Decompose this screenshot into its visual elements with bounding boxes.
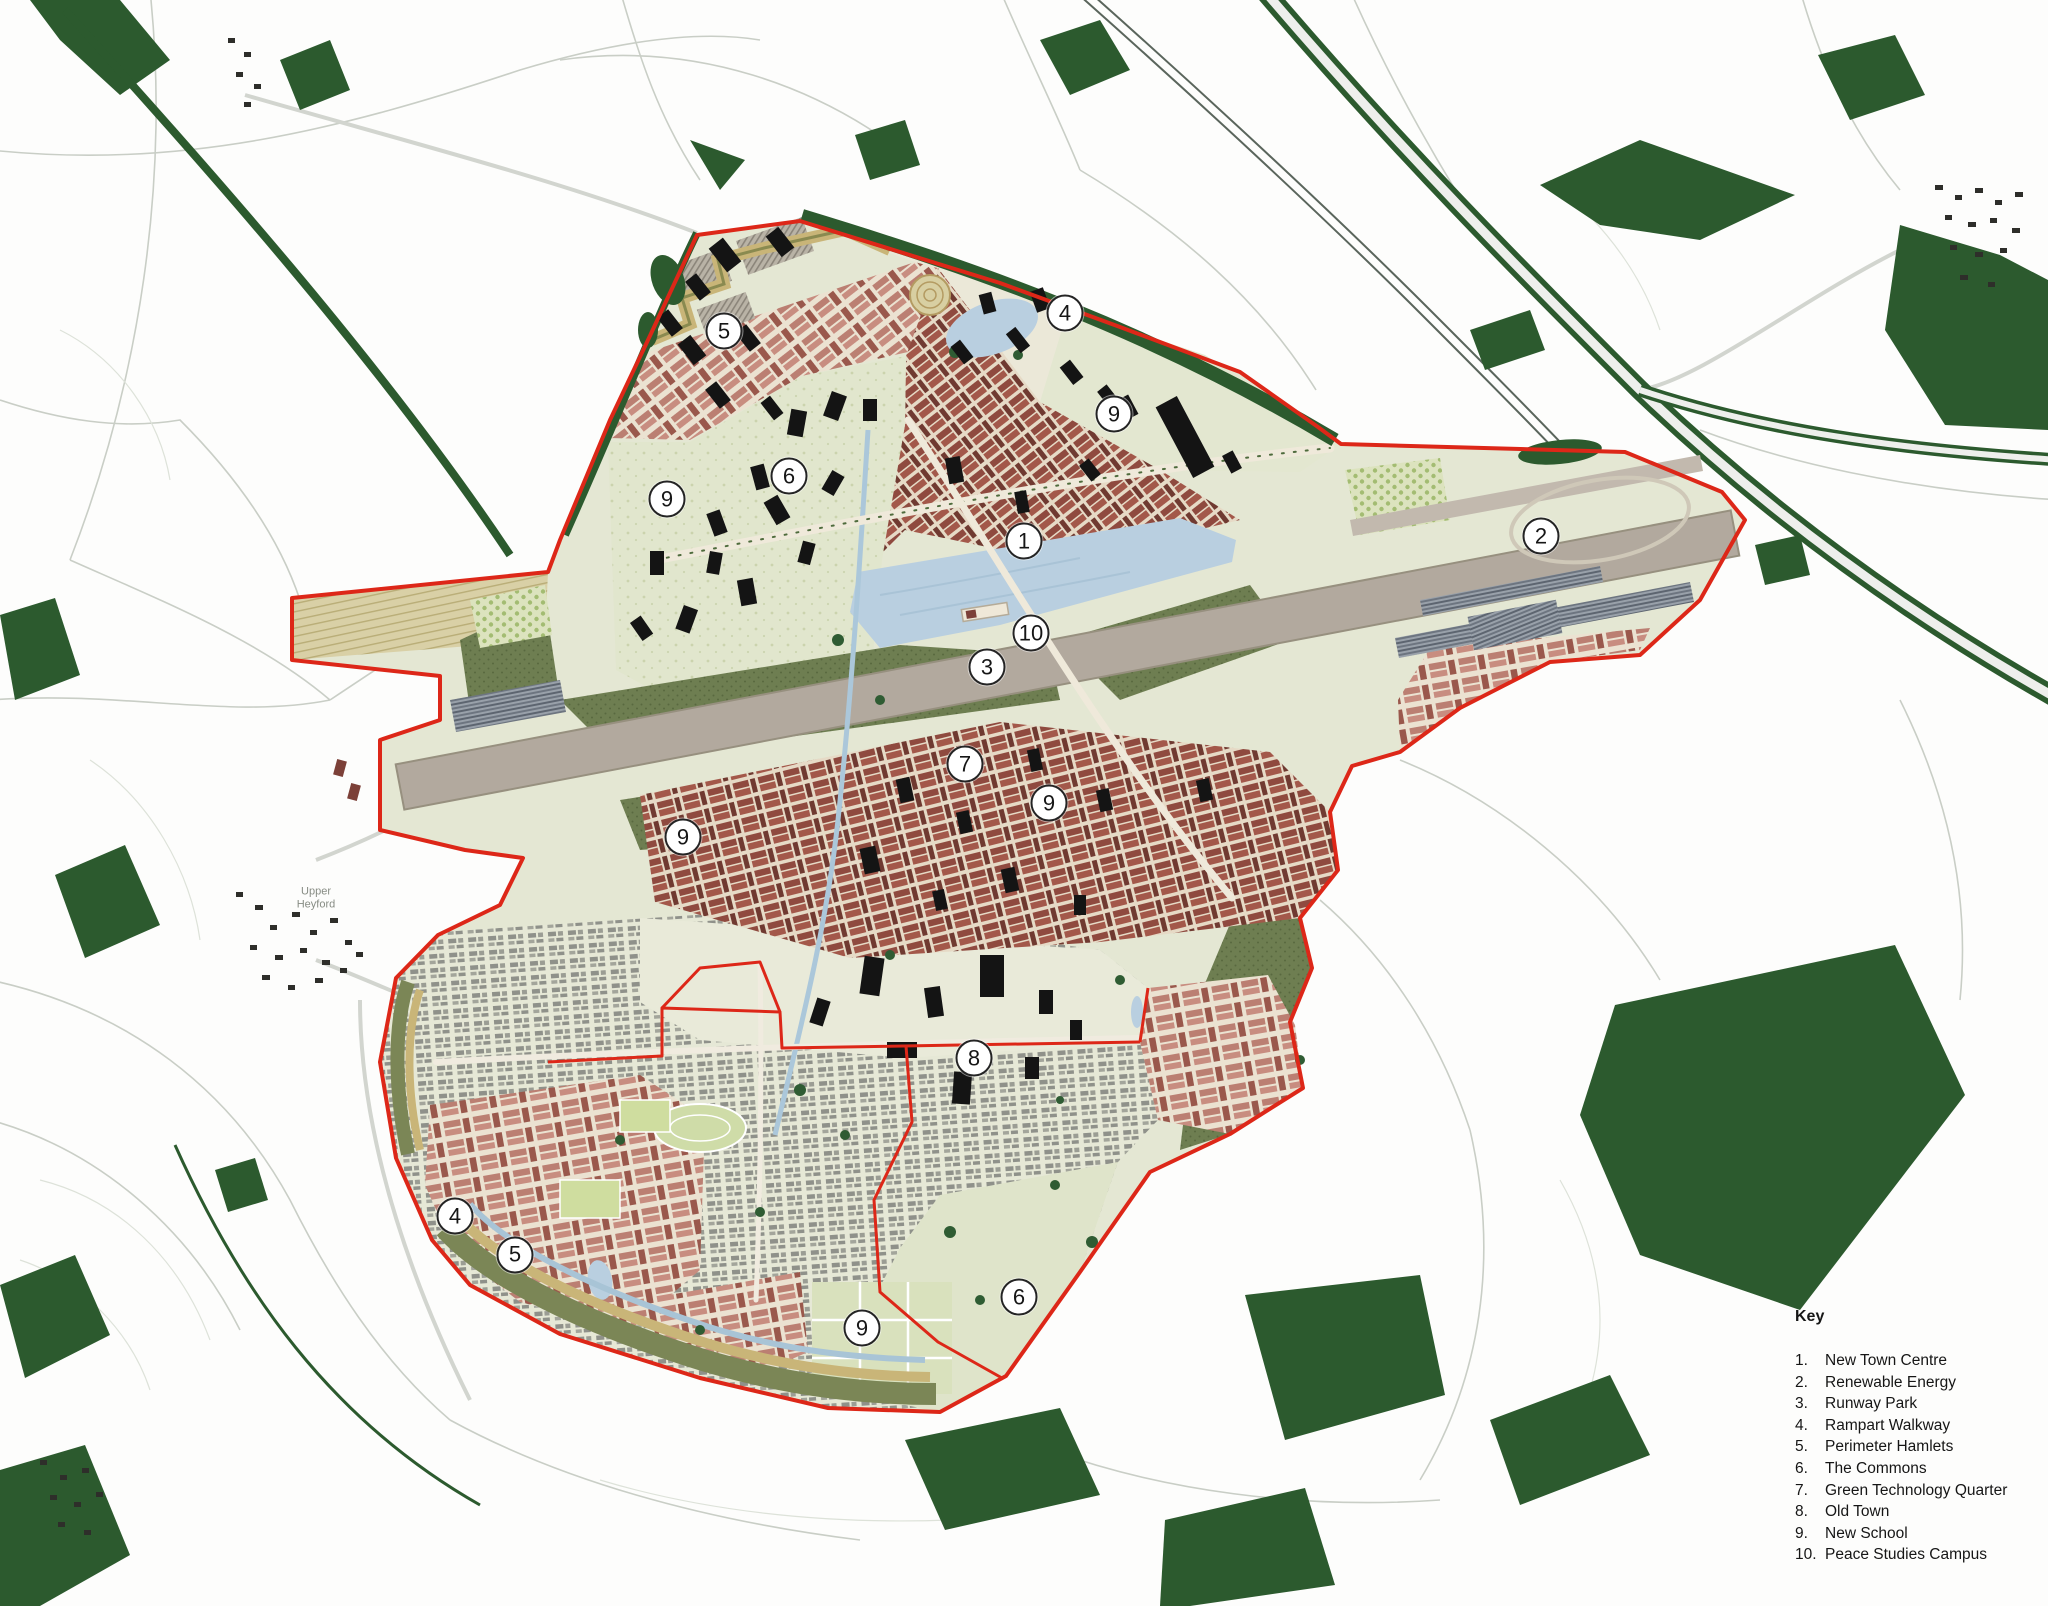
key-item-label: New School: [1825, 1523, 2047, 1545]
key-item: 10.Peace Studies Campus: [1795, 1544, 2047, 1566]
labyrinth-mound: [910, 275, 950, 315]
site: [292, 216, 1745, 1412]
key-item-label: Runway Park: [1825, 1393, 2047, 1415]
map-illustration: [0, 0, 2048, 1606]
key-item-label: Green Technology Quarter: [1825, 1480, 2047, 1502]
key-item: 5.Perimeter Hamlets: [1795, 1436, 2047, 1458]
key-item: 3.Runway Park: [1795, 1393, 2047, 1415]
key-item-label: Rampart Walkway: [1825, 1415, 2047, 1437]
key-item: 8.Old Town: [1795, 1501, 2047, 1523]
key-title: Key: [1795, 1308, 2047, 1326]
key-item-number: 9.: [1795, 1523, 1825, 1545]
village-upper-heyford: [236, 892, 363, 990]
key-item-number: 3.: [1795, 1393, 1825, 1415]
key-item: 1.New Town Centre: [1795, 1350, 2047, 1372]
key-item-number: 10.: [1795, 1544, 1825, 1566]
key-list: 1.New Town Centre2.Renewable Energy3.Run…: [1795, 1350, 2047, 1566]
key-item-label: Perimeter Hamlets: [1825, 1436, 2047, 1458]
key-item-number: 1.: [1795, 1350, 1825, 1372]
key-item: 7.Green Technology Quarter: [1795, 1480, 2047, 1502]
map-key: Key 1.New Town Centre2.Renewable Energy3…: [1795, 1308, 2047, 1566]
key-item-number: 7.: [1795, 1480, 1825, 1502]
masterplan-map: Upper Heyford 123445566789999910 Key 1.N…: [0, 0, 2048, 1606]
key-item-label: Old Town: [1825, 1501, 2047, 1523]
key-item: 9.New School: [1795, 1523, 2047, 1545]
key-item-number: 2.: [1795, 1372, 1825, 1394]
key-item: 6.The Commons: [1795, 1458, 2047, 1480]
key-item-number: 6.: [1795, 1458, 1825, 1480]
key-item-number: 4.: [1795, 1415, 1825, 1437]
key-item-number: 8.: [1795, 1501, 1825, 1523]
east-hamlet: [1140, 975, 1303, 1134]
key-item-label: Peace Studies Campus: [1825, 1544, 2047, 1566]
key-item: 4.Rampart Walkway: [1795, 1415, 2047, 1437]
key-item: 2.Renewable Energy: [1795, 1372, 2047, 1394]
key-item-label: New Town Centre: [1825, 1350, 2047, 1372]
key-item-label: Renewable Energy: [1825, 1372, 2047, 1394]
key-item-label: The Commons: [1825, 1458, 2047, 1480]
key-item-number: 5.: [1795, 1436, 1825, 1458]
